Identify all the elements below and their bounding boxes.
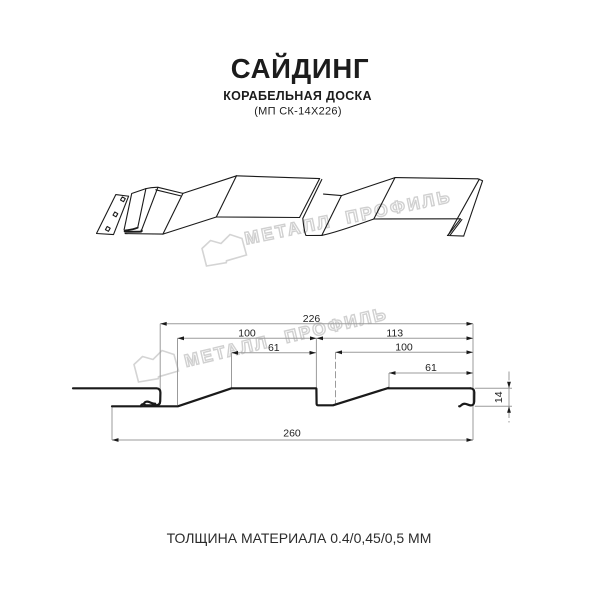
svg-text:14: 14 xyxy=(493,391,505,403)
svg-text:113: 113 xyxy=(386,328,403,340)
svg-text:260: 260 xyxy=(283,428,301,440)
svg-text:100: 100 xyxy=(238,328,256,340)
svg-text:КОРАБЕЛЬНАЯ ДОСКА: КОРАБЕЛЬНАЯ ДОСКА xyxy=(223,89,372,103)
svg-text:100: 100 xyxy=(395,342,413,354)
svg-text:САЙДИНГ: САЙДИНГ xyxy=(231,53,370,84)
svg-text:226: 226 xyxy=(303,313,321,325)
svg-text:(МП СК-14Х226): (МП СК-14Х226) xyxy=(254,106,342,118)
svg-text:61: 61 xyxy=(268,342,280,354)
svg-text:ТОЛЩИНА МАТЕРИАЛА 0.4/0,45/0,5: ТОЛЩИНА МАТЕРИАЛА 0.4/0,45/0,5 ММ xyxy=(167,530,432,546)
svg-text:61: 61 xyxy=(425,362,437,374)
